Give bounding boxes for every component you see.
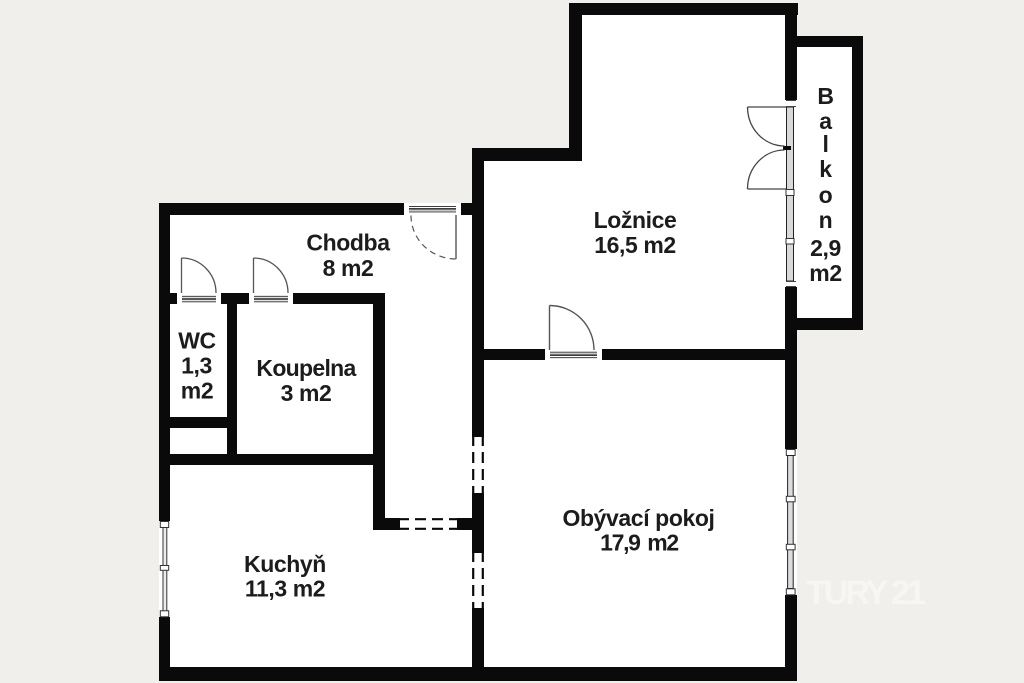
svg-text:Chodba: Chodba	[306, 230, 390, 256]
svg-text:11,3 m2: 11,3 m2	[245, 576, 325, 602]
svg-text:8 m2: 8 m2	[323, 255, 374, 281]
svg-text:TURY 21: TURY 21	[806, 574, 925, 612]
svg-text:B: B	[817, 83, 833, 109]
svg-text:Koupelna: Koupelna	[256, 355, 356, 381]
svg-text:n: n	[819, 207, 833, 233]
svg-text:m2: m2	[181, 378, 213, 404]
svg-text:WC: WC	[178, 328, 216, 354]
svg-text:k: k	[819, 156, 832, 182]
svg-text:2,9: 2,9	[810, 235, 841, 261]
svg-text:l: l	[823, 131, 829, 157]
svg-text:m2: m2	[809, 260, 841, 286]
svg-text:16,5 m2: 16,5 m2	[594, 232, 676, 258]
svg-text:o: o	[819, 182, 833, 208]
svg-text:17,9 m2: 17,9 m2	[600, 530, 678, 556]
svg-text:1,3: 1,3	[181, 353, 212, 379]
svg-text:Kuchyň: Kuchyň	[244, 551, 326, 577]
svg-text:Obývací pokoj: Obývací pokoj	[562, 505, 714, 531]
svg-text:3 m2: 3 m2	[281, 380, 332, 406]
svg-text:Ložnice: Ložnice	[594, 207, 677, 233]
